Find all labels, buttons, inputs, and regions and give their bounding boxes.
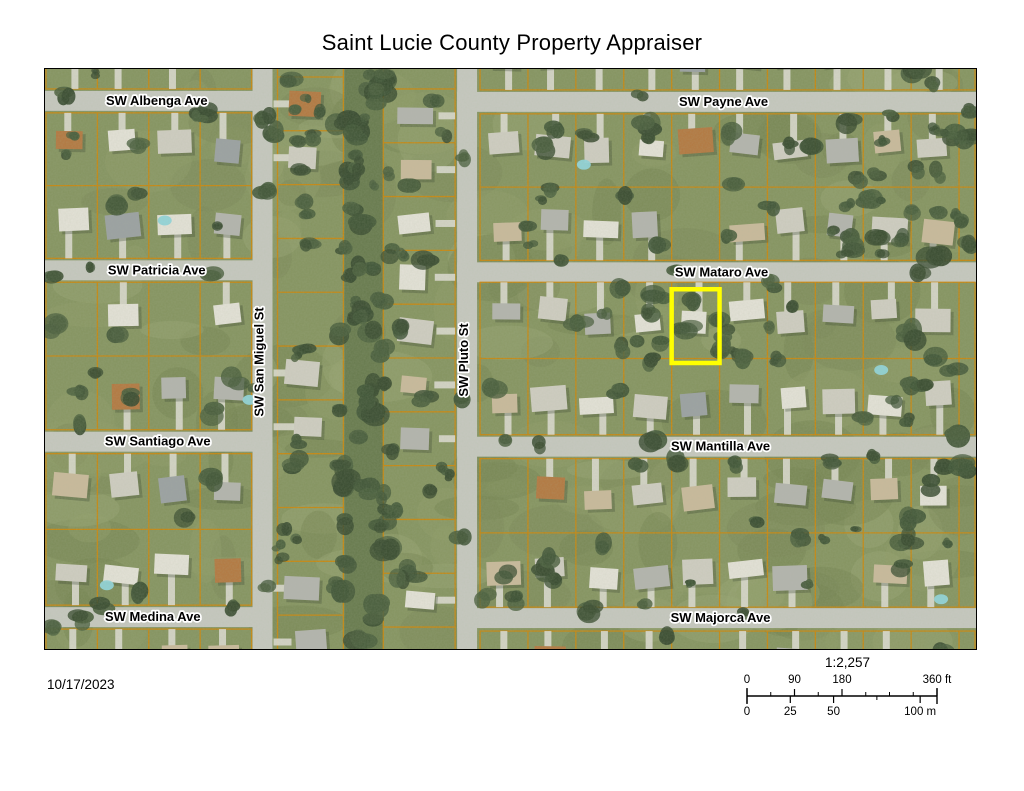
street-label-sw-albenga-ave: SW Albenga Ave (106, 93, 208, 108)
street-label-sw-medina-ave: SW Medina Ave (105, 609, 201, 624)
photo-grain (45, 69, 976, 649)
scale-ft-label: 360 ft (923, 674, 953, 686)
street-label-sw-mantilla-ave: SW Mantilla Ave (671, 439, 770, 454)
map-image: SW Albenga AveSW Payne AveSW Patricia Av… (44, 68, 977, 650)
map-date: 10/17/2023 (47, 677, 115, 692)
street-label-sw-patricia-ave: SW Patricia Ave (108, 262, 206, 277)
street-label-sw-mataro-ave: SW Mataro Ave (675, 264, 768, 279)
street-label-sw-san-miguel-st: SW San Miguel St (252, 307, 267, 417)
scale-ft-label: 0 (744, 674, 750, 686)
scale-ft-label: 180 (832, 674, 851, 686)
page-title: Saint Lucie County Property Appraiser (0, 30, 1024, 56)
page: Saint Lucie County Property Appraiser SW… (0, 0, 1024, 791)
scale-m-label: 25 (784, 706, 797, 718)
scale-bar-graphic: 090180360 ft02550100 m (740, 671, 955, 723)
scale-ratio-label: 1:2,257 (740, 654, 955, 671)
street-label-sw-majorca-ave: SW Majorca Ave (671, 610, 771, 625)
scale-m-label: 50 (827, 706, 840, 718)
scale-m-label: 100 m (904, 706, 936, 718)
street-label-sw-pluto-st: SW Pluto St (456, 323, 471, 397)
scale-m-label: 0 (744, 706, 750, 718)
scale-ft-label: 90 (788, 674, 801, 686)
street-label-sw-payne-ave: SW Payne Ave (679, 94, 768, 109)
aerial-photo: SW Albenga AveSW Payne AveSW Patricia Av… (45, 69, 976, 649)
street-label-sw-santiago-ave: SW Santiago Ave (105, 434, 211, 449)
scale-bar-ticks: 090180360 ft02550100 m (740, 671, 955, 723)
scale-bar: 1:2,257 090180360 ft02550100 m (740, 654, 955, 723)
